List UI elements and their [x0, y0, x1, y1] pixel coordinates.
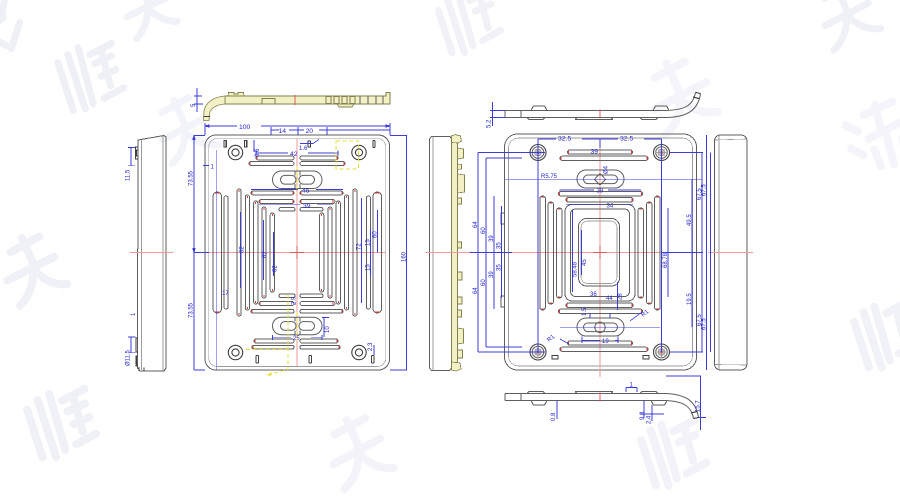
svg-text:73.55: 73.55 — [189, 302, 195, 318]
svg-text:0.8: 0.8 — [551, 412, 557, 421]
svg-text:67.5: 67.5 — [702, 318, 708, 330]
svg-text:45: 45 — [582, 259, 588, 266]
svg-text:60: 60 — [481, 279, 487, 286]
svg-text:15: 15 — [366, 239, 372, 246]
svg-text:39: 39 — [303, 203, 311, 210]
svg-text:28: 28 — [618, 293, 624, 300]
svg-text:35: 35 — [497, 242, 503, 249]
svg-text:39: 39 — [591, 149, 599, 156]
svg-text:36: 36 — [590, 292, 597, 298]
svg-text:58.48: 58.48 — [573, 261, 579, 277]
svg-text:100: 100 — [239, 124, 251, 131]
svg-text:Ø11.5: Ø11.5 — [126, 349, 132, 366]
svg-text:1.5: 1.5 — [582, 307, 588, 316]
svg-text:62: 62 — [240, 246, 246, 253]
svg-text:60: 60 — [481, 227, 487, 234]
svg-text:15: 15 — [366, 264, 372, 271]
svg-text:0.6: 0.6 — [255, 148, 261, 157]
svg-text:62: 62 — [263, 251, 269, 258]
svg-text:44: 44 — [606, 296, 613, 302]
svg-text:15.7: 15.7 — [696, 400, 702, 412]
svg-text:35: 35 — [497, 264, 503, 271]
svg-text:39: 39 — [489, 271, 495, 278]
svg-text:Ø4: Ø4 — [604, 165, 610, 174]
svg-text:64: 64 — [473, 287, 479, 294]
svg-text:49.5: 49.5 — [687, 214, 693, 226]
svg-text:60: 60 — [373, 231, 379, 238]
svg-text:17: 17 — [222, 291, 229, 297]
svg-text:2.9: 2.9 — [292, 296, 298, 305]
svg-text:19.5: 19.5 — [687, 293, 693, 305]
svg-text:10: 10 — [325, 326, 331, 333]
svg-text:67.5: 67.5 — [702, 184, 708, 196]
svg-text:9.8: 9.8 — [640, 411, 646, 420]
svg-text:14: 14 — [279, 128, 287, 135]
svg-text:2.4: 2.4 — [647, 415, 653, 424]
svg-text:32.5: 32.5 — [620, 136, 633, 143]
svg-text:64: 64 — [473, 221, 479, 228]
svg-text:73.55: 73.55 — [189, 170, 195, 186]
svg-text:20: 20 — [306, 128, 314, 135]
svg-text:11.5: 11.5 — [126, 169, 132, 181]
svg-text:62: 62 — [273, 265, 279, 272]
svg-text:R5.75: R5.75 — [541, 174, 558, 180]
svg-text:45: 45 — [302, 188, 310, 195]
svg-text:68.78: 68.78 — [663, 252, 669, 268]
svg-text:5.2: 5.2 — [487, 119, 493, 128]
svg-text:32.5: 32.5 — [558, 136, 571, 143]
svg-text:19: 19 — [602, 339, 609, 345]
svg-text:39: 39 — [489, 235, 495, 242]
svg-text:42: 42 — [290, 151, 298, 158]
svg-text:39: 39 — [597, 189, 604, 195]
svg-text:1.6: 1.6 — [299, 146, 308, 152]
svg-text:160: 160 — [402, 251, 408, 262]
svg-text:2.3: 2.3 — [368, 342, 374, 351]
svg-text:72: 72 — [357, 243, 363, 250]
svg-text:34: 34 — [607, 204, 614, 210]
